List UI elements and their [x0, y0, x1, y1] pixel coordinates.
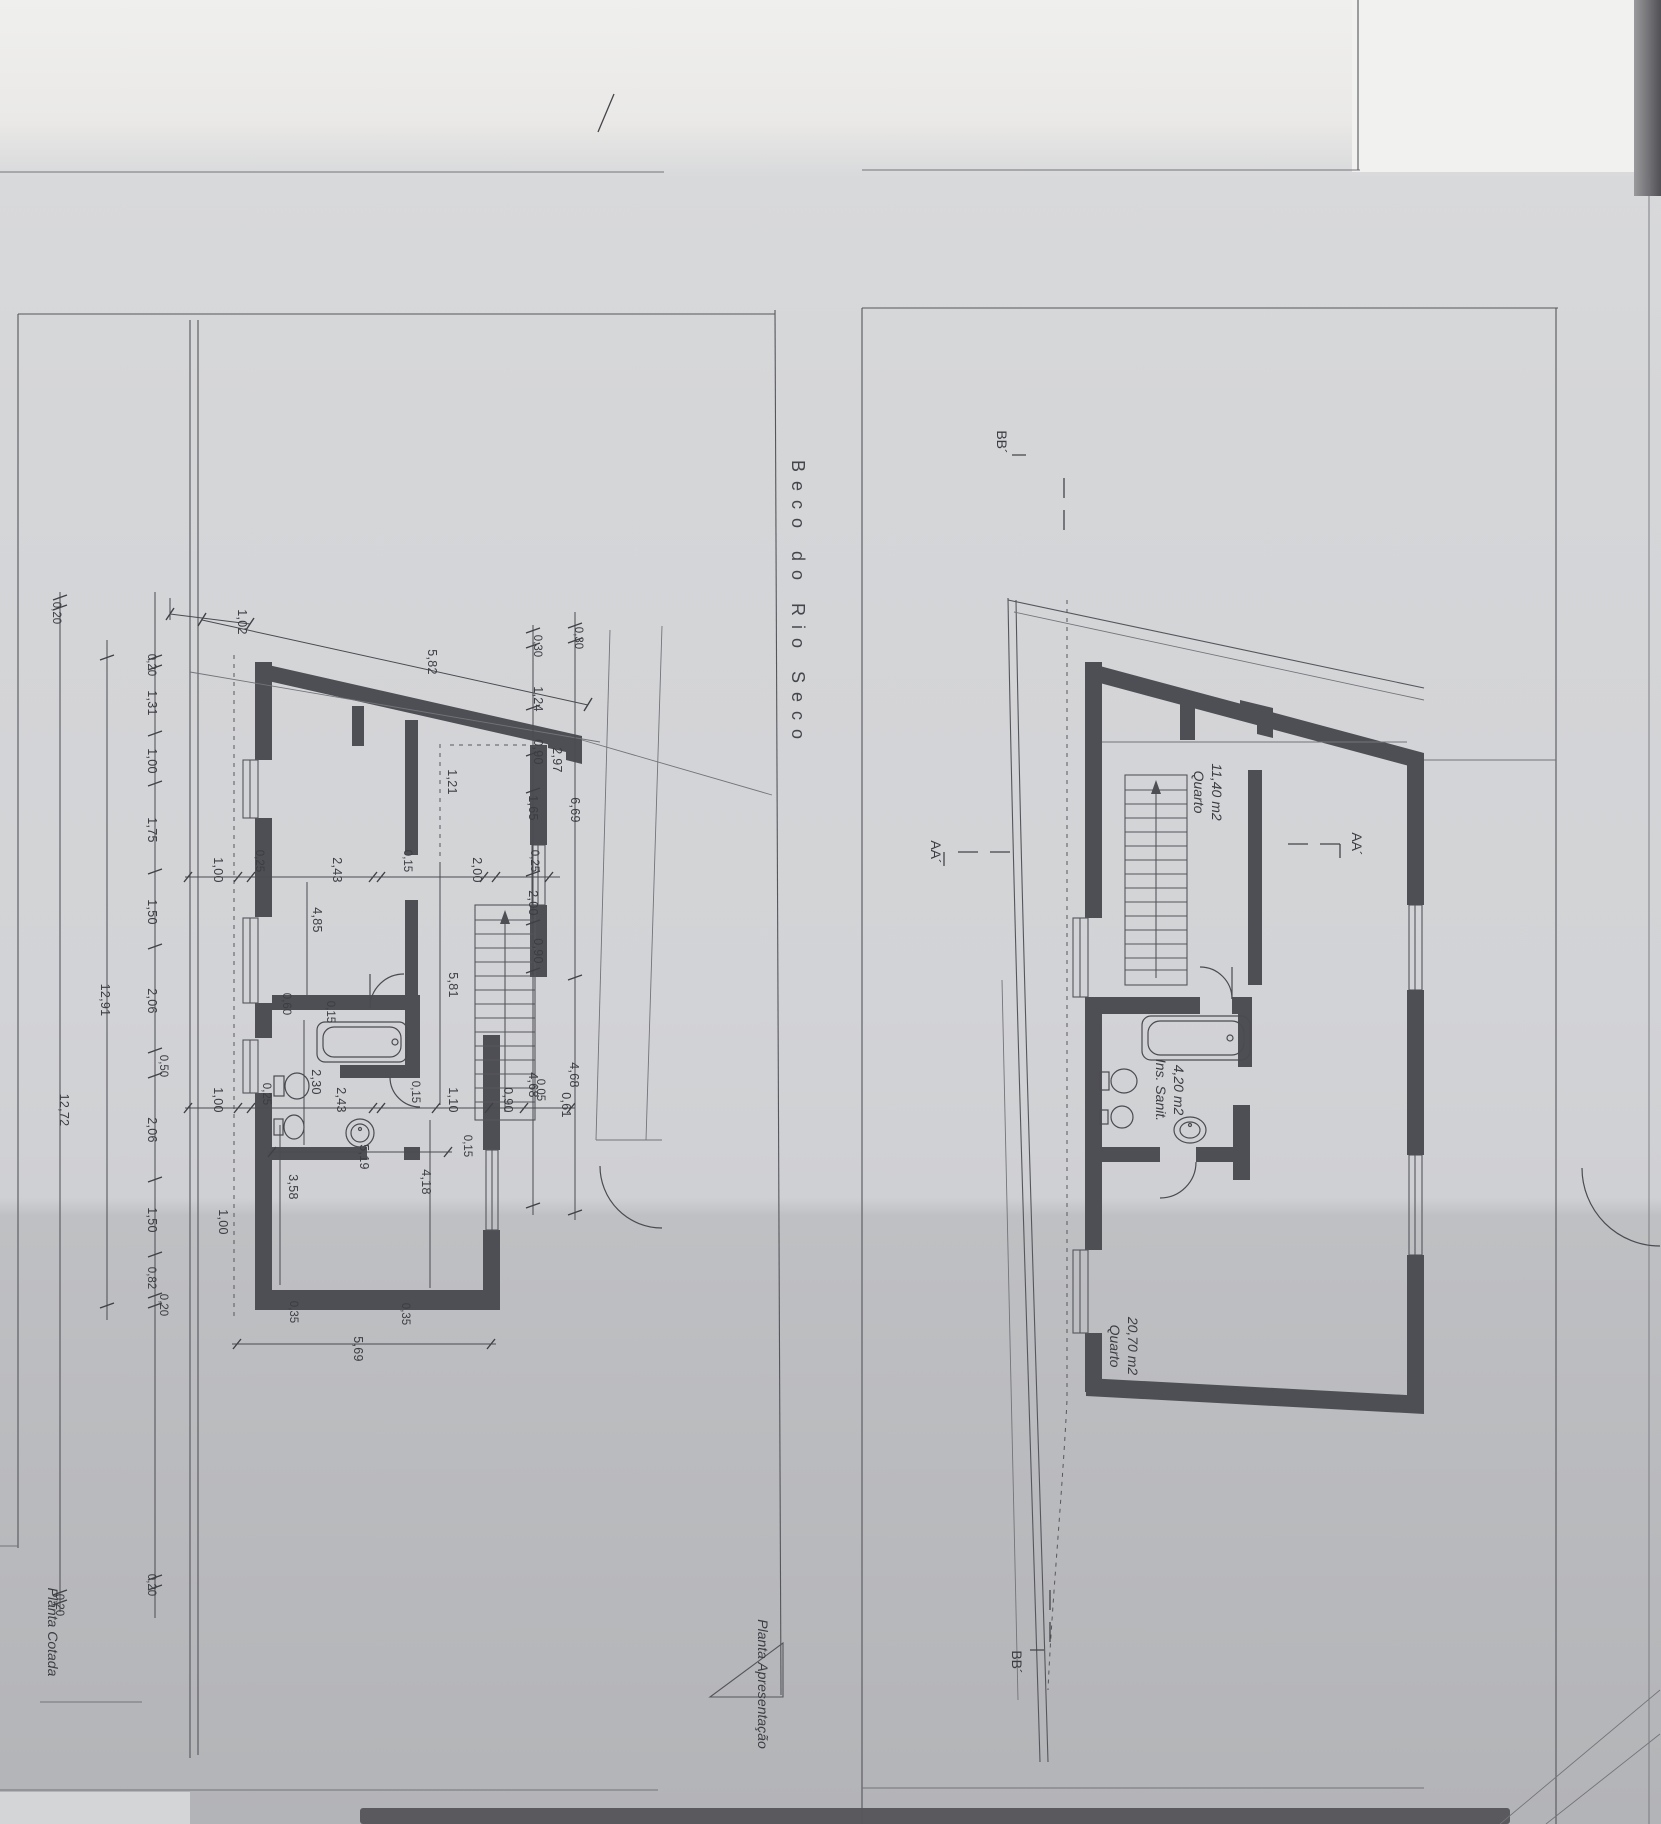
- room-label: Ins. Sanit.: [1153, 1059, 1169, 1121]
- dim-label: 0,82: [145, 1267, 157, 1289]
- stairs-up-arrow-icon: [1151, 780, 1161, 794]
- dim-label: 0,61: [559, 1092, 573, 1118]
- dim-label: 2,06: [145, 988, 159, 1014]
- dim-label: 0,90: [501, 1087, 515, 1113]
- washbasin-icon: [346, 1119, 374, 1147]
- section-marker-bb-top: BB´: [994, 430, 1010, 453]
- section-marker-bb-bottom: BB´: [1009, 1650, 1025, 1673]
- dim-label: 1,00: [216, 1209, 230, 1235]
- dim-label: 2,43: [330, 857, 344, 883]
- context-door-arc: [1582, 1168, 1660, 1246]
- dim-label: 2,97: [550, 747, 564, 773]
- dimension-labels: 1,02 5,82 0,20 1,31 1,00 1,75 1,50 2,06 …: [50, 602, 584, 1616]
- dim-label: 4,18: [419, 1169, 433, 1195]
- dim-label: 1,24: [531, 686, 545, 712]
- dim-label: 0,90: [531, 938, 545, 964]
- room-area-label: 4,20 m2: [1171, 1065, 1187, 1116]
- dim-label: 0,25: [253, 850, 265, 872]
- dim-label: 5,69: [351, 1336, 365, 1362]
- room-label: Quarto: [1107, 1325, 1123, 1368]
- dim-label: 2,00: [470, 857, 484, 883]
- bathtub-icon: [317, 1022, 407, 1062]
- dim-label: 2,43: [334, 1087, 348, 1113]
- stairs-up-arrow-icon: [500, 910, 510, 924]
- dim-label: 2,30: [309, 1069, 323, 1095]
- blueprint-linework: 1,02 5,82 0,20 1,31 1,00 1,75 1,50 2,06 …: [0, 0, 1661, 1824]
- caption-planta-cotada: Planta Cotada: [45, 1588, 61, 1677]
- dim-label: 0,35: [399, 1303, 411, 1325]
- dim-label: 0,50: [157, 1055, 169, 1077]
- washbasin-icon: [1174, 1117, 1206, 1143]
- dim-label: 0,20: [145, 1574, 157, 1596]
- stairs: [1125, 775, 1187, 985]
- floor-plan-cotada: 1,02 5,82 0,20 1,31 1,00 1,75 1,50 2,06 …: [50, 592, 772, 1618]
- room-area-label: 20,70 m2: [1125, 1316, 1141, 1376]
- dim-label: 0,25: [260, 1083, 272, 1105]
- dim-label: 0,60: [280, 993, 292, 1015]
- section-marker-aa-right: AA´: [1349, 832, 1365, 855]
- floor-plan-apresentacao: BB´ AA´ AA´ BB´ Quarto 11,40 m2 Ins. San…: [928, 430, 1424, 1690]
- dim-label: 4,68: [567, 1062, 581, 1088]
- dim-label: 0,20: [145, 654, 157, 676]
- dim-label: 1,00: [145, 748, 159, 774]
- dim-label: 0,15: [401, 850, 413, 872]
- street-name-label: Beco do Rio Seco: [788, 460, 808, 748]
- dim-label: 0,20: [50, 602, 62, 624]
- dim-label: 5,82: [425, 649, 439, 675]
- dim-label: 1,00: [211, 1087, 225, 1113]
- dim-label: 2,06: [145, 1117, 159, 1143]
- dim-label: 5,19: [357, 1144, 371, 1170]
- bidet-icon: [1100, 1106, 1133, 1128]
- dim-label: 0,15: [409, 1081, 421, 1103]
- bidet-icon: [274, 1115, 304, 1139]
- dim-label: 1,65: [526, 795, 540, 821]
- dim-label: 1,50: [145, 899, 159, 925]
- wall-bottom: [1086, 1378, 1424, 1414]
- dim-label: 0,30: [531, 635, 543, 657]
- photographed-blueprint: 1,02 5,82 0,20 1,31 1,00 1,75 1,50 2,06 …: [0, 0, 1661, 1824]
- dim-label: 0,30: [572, 627, 584, 649]
- dim-label: 12,72: [57, 1094, 71, 1127]
- dim-label: 1,31: [145, 690, 159, 716]
- section-markers: BB´ AA´ AA´ BB´: [928, 430, 1365, 1673]
- dim-label: 1,10: [446, 1087, 460, 1113]
- dim-label: 4,68: [526, 1072, 540, 1098]
- dim-label: 0,20: [157, 1294, 169, 1316]
- dim-label: 12,91: [98, 984, 112, 1017]
- toilet-icon: [1100, 1069, 1137, 1093]
- dim-label: 3,58: [286, 1174, 300, 1200]
- caption-planta-apresentacao: Planta Apresentação: [755, 1619, 771, 1749]
- room-area-label: 11,40 m2: [1209, 763, 1225, 821]
- dim-label: 0,15: [461, 1135, 473, 1157]
- dim-label: 1,02: [235, 609, 249, 635]
- dim-label: 0,15: [324, 1001, 336, 1023]
- dim-label: 5,81: [446, 972, 460, 998]
- bathtub-icon: [1142, 1016, 1250, 1060]
- dim-label: 1,00: [211, 857, 225, 883]
- sheet-frames: [0, 0, 1660, 1824]
- section-marker-aa-left: AA´: [928, 840, 944, 863]
- wall-bath-top: [1085, 997, 1200, 1014]
- dim-label: 1,75: [145, 817, 159, 843]
- dim-label: 0,90: [531, 739, 545, 765]
- dim-label: 1,50: [145, 1207, 159, 1233]
- dim-label: 6,69: [568, 797, 582, 823]
- dim-label: 1,21: [445, 769, 459, 795]
- room-label: Quarto: [1191, 771, 1207, 814]
- pen-mark: [598, 94, 614, 132]
- dim-label: 4,85: [310, 907, 324, 933]
- dim-label: 0,25: [528, 850, 540, 872]
- wall-bath-top: [272, 995, 420, 1010]
- section-line-bb-dashed: [1048, 600, 1067, 1690]
- dim-label: 0,35: [287, 1301, 299, 1323]
- dim-label: 2,00: [526, 890, 540, 916]
